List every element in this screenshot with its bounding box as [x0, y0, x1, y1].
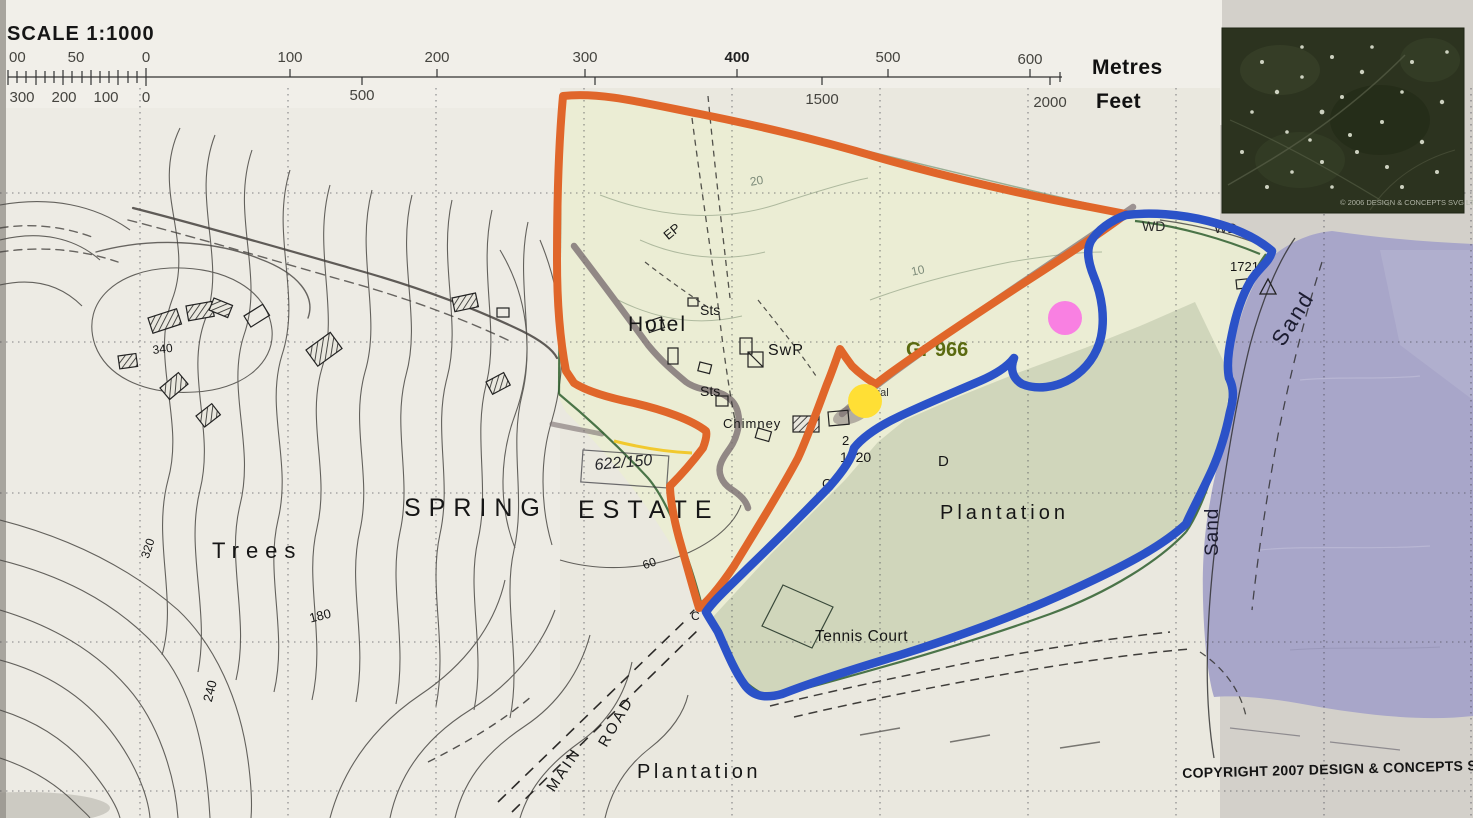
pink-dot-marker: [1048, 301, 1082, 335]
yellow-dot-marker: [848, 384, 882, 418]
blue-route-outline: [706, 214, 1272, 697]
annotation-layer: [0, 0, 1473, 818]
yellow-accent-line: [614, 441, 692, 453]
orange-route-outline: [557, 95, 1126, 608]
scanned-estate-map: SCALE 1:1000 Metres Feet 00 50 0 100 200…: [0, 0, 1473, 818]
